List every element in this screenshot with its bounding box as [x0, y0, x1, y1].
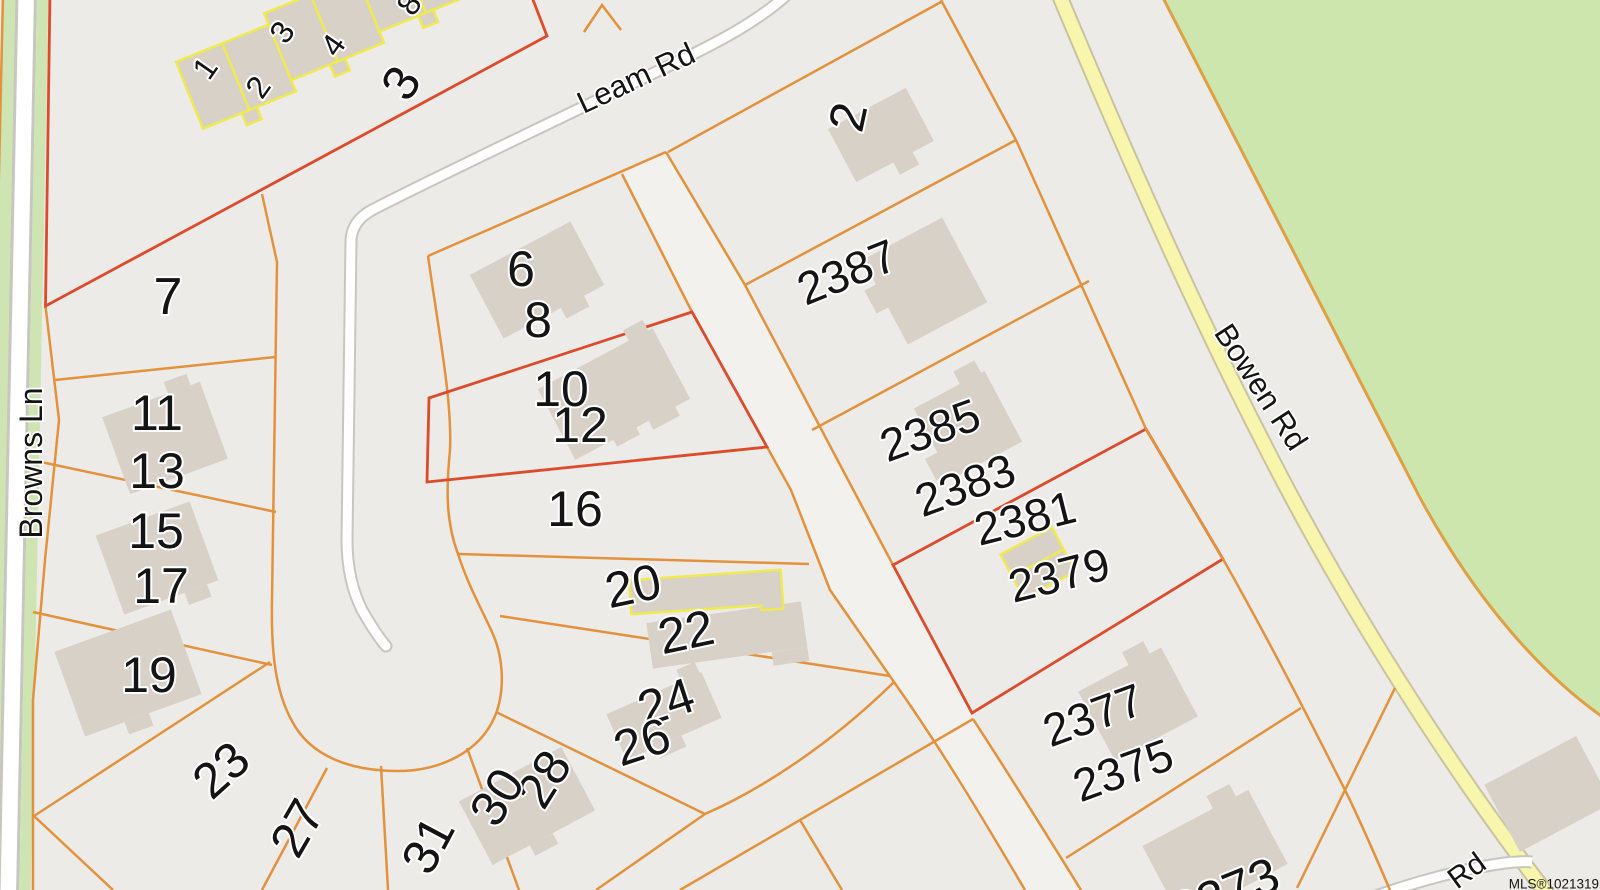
- svg-text:17: 17: [133, 558, 189, 614]
- svg-text:12: 12: [552, 397, 608, 453]
- svg-text:11: 11: [131, 385, 183, 441]
- svg-text:13: 13: [129, 443, 185, 499]
- svg-text:7: 7: [154, 268, 183, 326]
- svg-text:19: 19: [121, 647, 177, 703]
- svg-text:22: 22: [653, 599, 719, 665]
- svg-text:6: 6: [507, 241, 535, 297]
- svg-text:8: 8: [524, 292, 552, 348]
- svg-text:MLS®1021319: MLS®1021319: [1509, 877, 1599, 890]
- svg-text:16: 16: [547, 481, 603, 537]
- svg-text:Browns Ln: Browns Ln: [13, 387, 49, 538]
- svg-text:15: 15: [128, 503, 184, 559]
